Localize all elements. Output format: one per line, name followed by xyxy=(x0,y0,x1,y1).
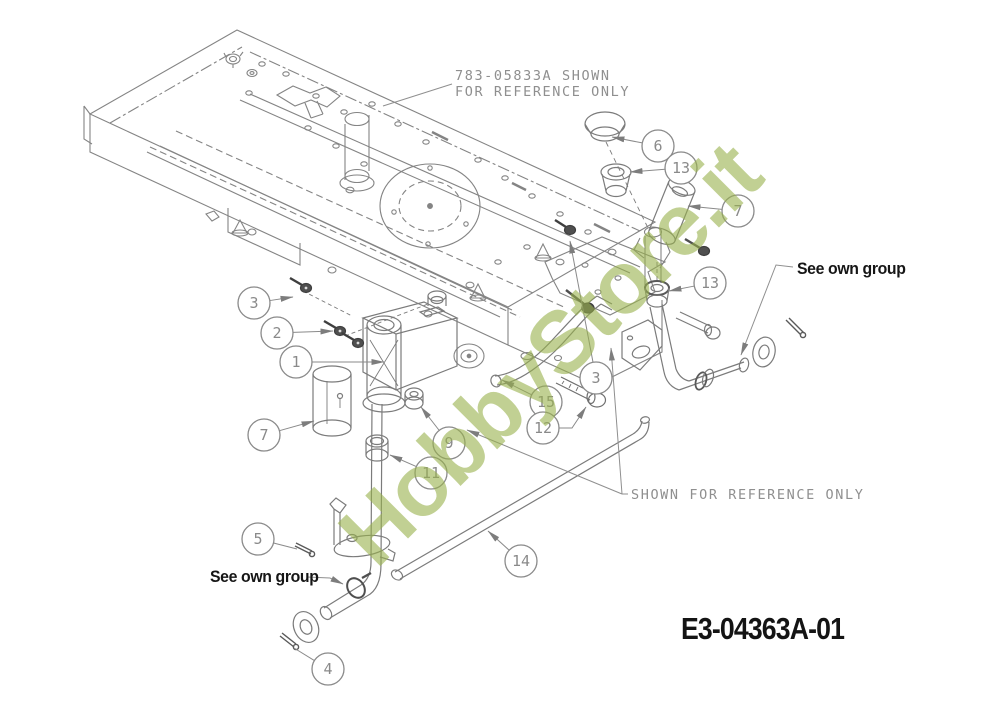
callout-7: 7 xyxy=(688,195,754,227)
callout-number: 11 xyxy=(422,464,440,482)
callout-2: 2 xyxy=(261,317,333,349)
callout-15: 15 xyxy=(502,380,562,418)
steering-shaft-assembly xyxy=(289,388,423,646)
callout-number: 12 xyxy=(534,419,552,437)
callout-number: 1 xyxy=(291,353,300,371)
callout-13: 13 xyxy=(669,267,726,299)
callout-number: 4 xyxy=(323,660,332,678)
callout-11: 11 xyxy=(390,455,447,489)
callout-number: 6 xyxy=(653,137,662,155)
top-reference-note: 783-05833A SHOWNFOR REFERENCE ONLY xyxy=(455,68,630,100)
pivot-bar-assembly xyxy=(622,239,806,391)
mid-reference-note: SHOWN FOR REFERENCE ONLY xyxy=(631,487,864,503)
callout-number: 15 xyxy=(537,393,555,411)
callout-number: 3 xyxy=(249,294,258,312)
callout-5: 5 xyxy=(242,523,297,555)
callout-6: 6 xyxy=(612,130,674,162)
exploded-parts-drawing: 6137133217315129115144 xyxy=(0,0,1000,707)
callout-number: 13 xyxy=(672,159,690,177)
callout-number: 13 xyxy=(701,274,719,292)
axle-support-casting xyxy=(303,291,457,412)
callout-number: 7 xyxy=(733,202,742,220)
callout-1: 1 xyxy=(280,346,384,378)
drawing-number: E3-04363A-01 xyxy=(681,611,844,647)
callout-14: 14 xyxy=(488,531,537,577)
callout-number: 5 xyxy=(253,530,262,548)
callout-9: 9 xyxy=(421,407,465,459)
see-own-group-note-left: See own group xyxy=(210,567,318,587)
callout-number: 2 xyxy=(272,324,281,342)
see-own-group-note-right: See own group xyxy=(797,259,905,279)
callout-number: 9 xyxy=(444,434,453,452)
callout-3: 3 xyxy=(570,241,612,394)
callout-3: 3 xyxy=(238,287,293,319)
split-sleeve-left xyxy=(313,366,351,436)
callout-7: 7 xyxy=(248,419,314,451)
callout-number: 7 xyxy=(259,426,268,444)
callout-number: 14 xyxy=(512,552,530,570)
parts-diagram-page: 6137133217315129115144 783-05833A SHOWNF… xyxy=(0,0,1000,707)
callout-4: 4 xyxy=(294,648,344,685)
seat-plate xyxy=(380,164,480,248)
callout-number: 3 xyxy=(591,369,600,387)
